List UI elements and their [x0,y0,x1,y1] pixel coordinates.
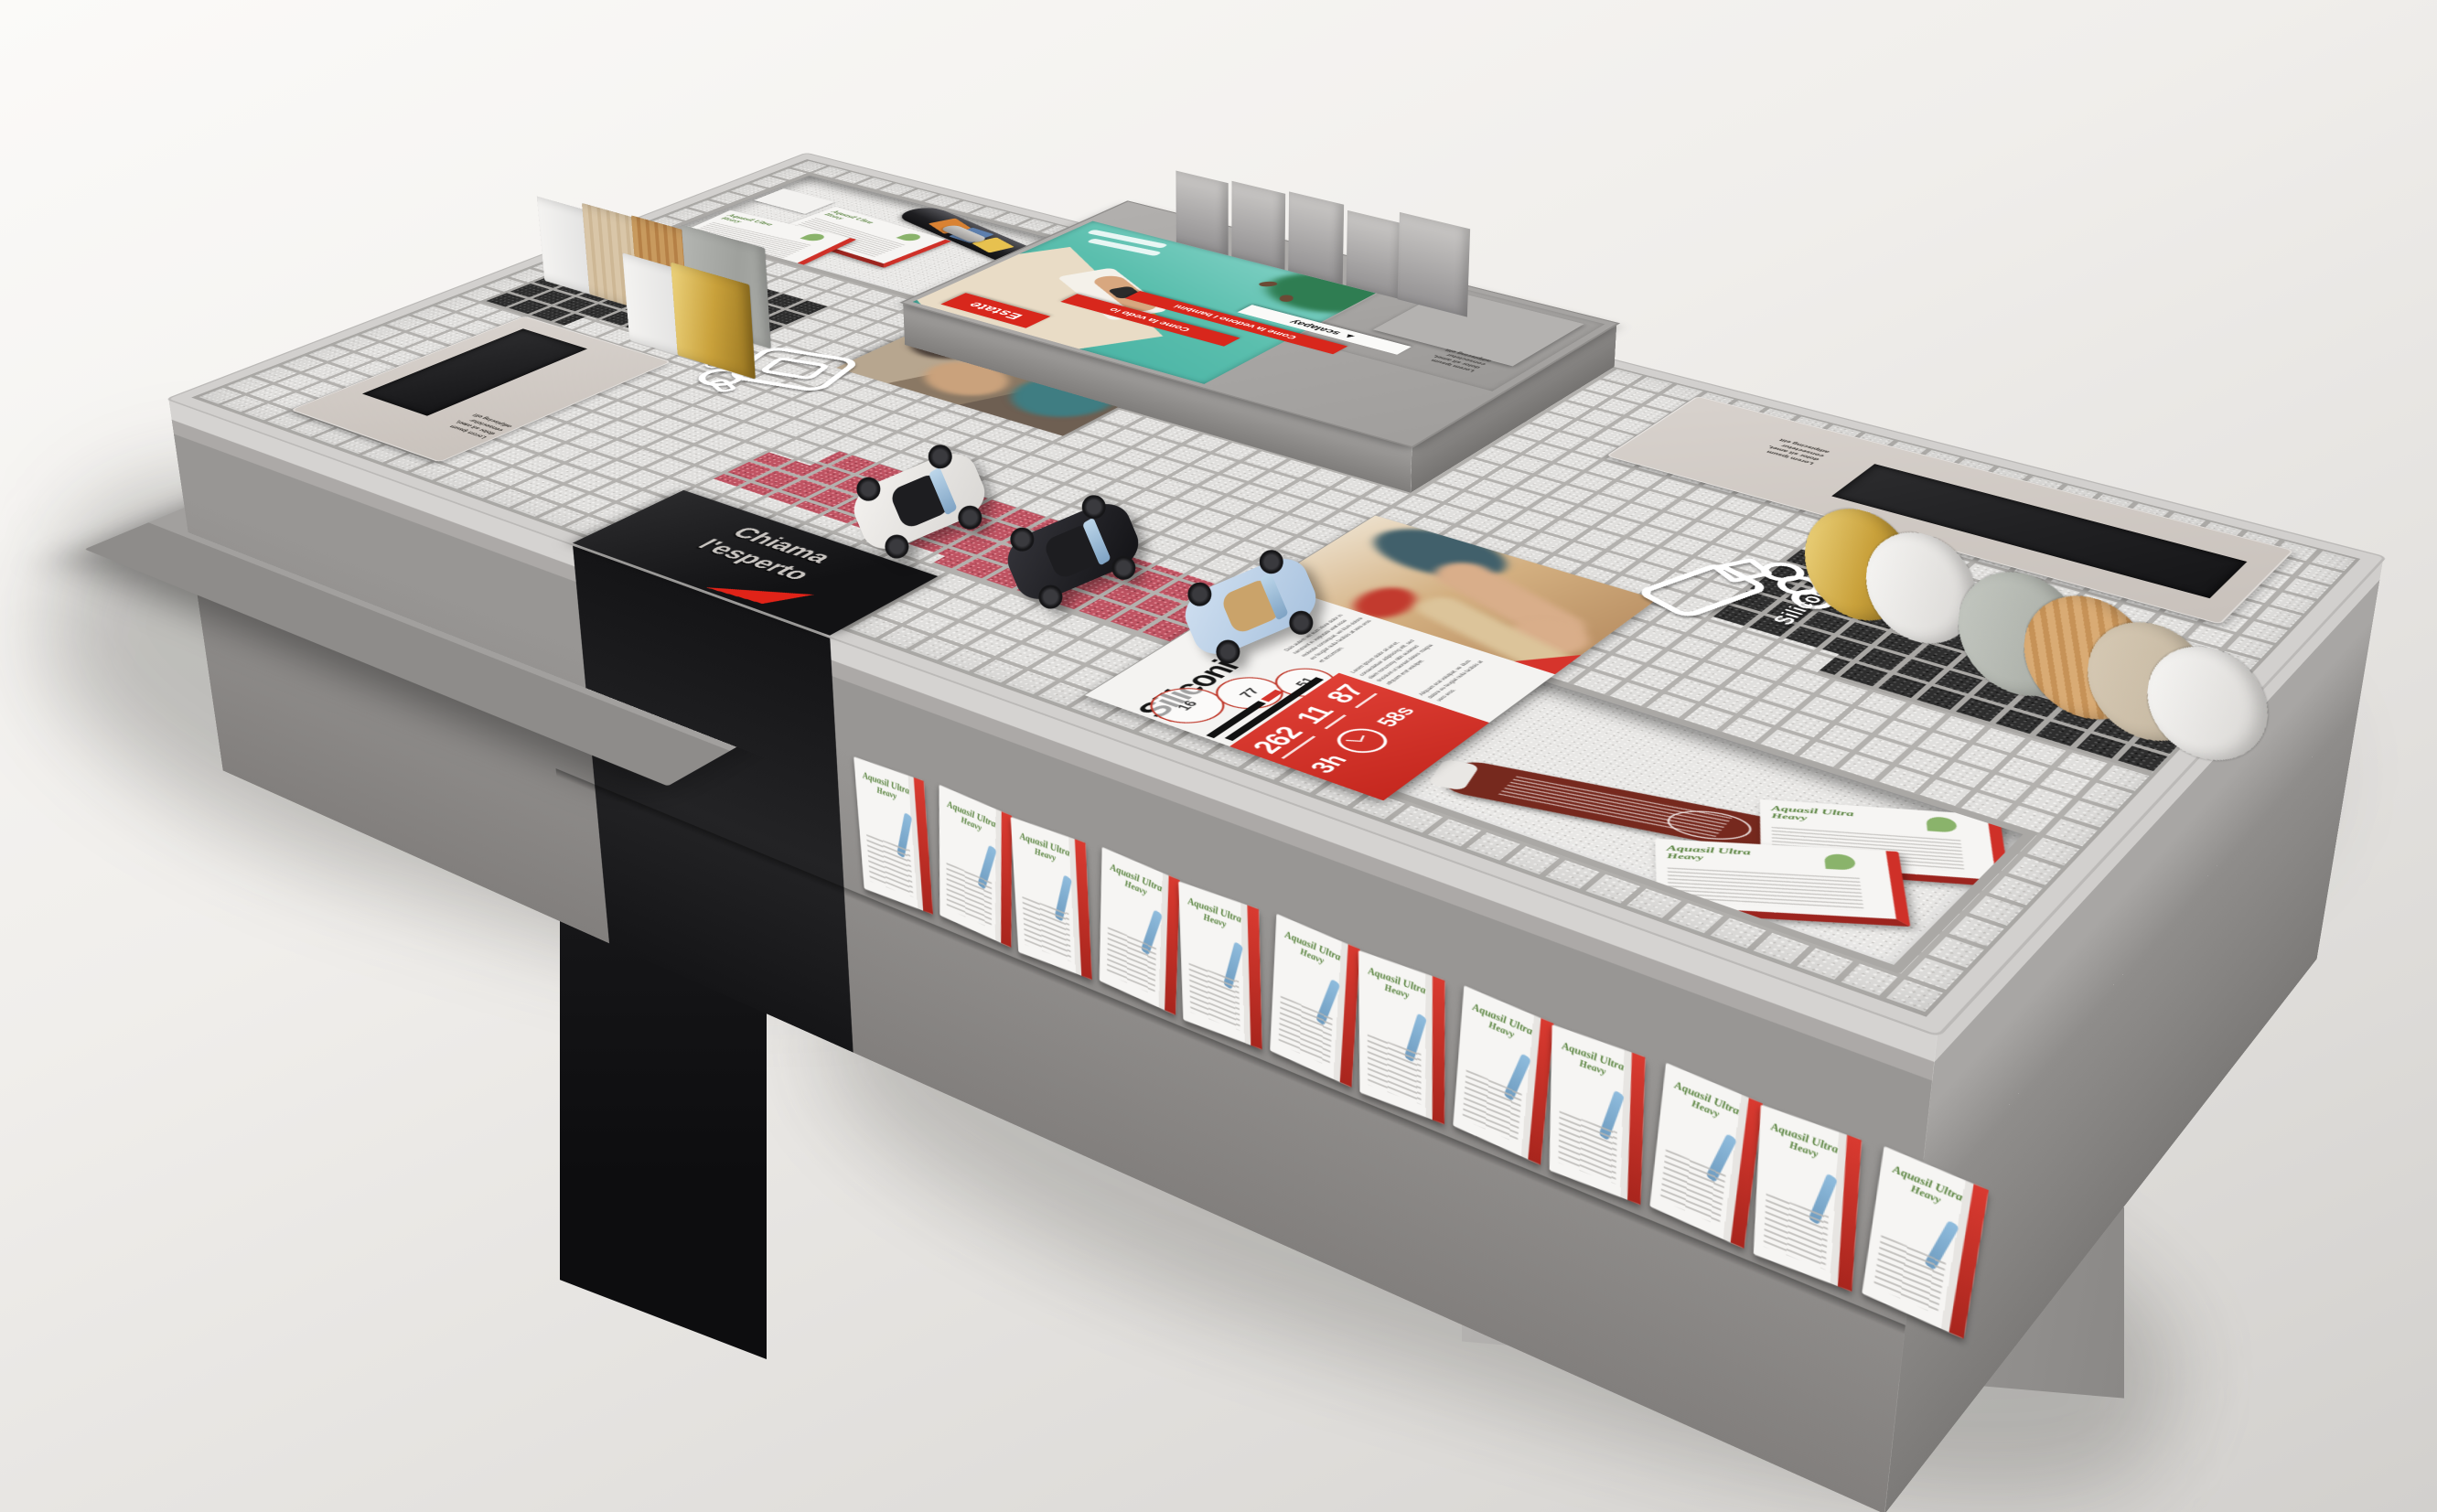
leaf-graphic [1824,853,1856,871]
white-sample-box [754,188,834,214]
product-box: Aquasil Ultra Heavy [1358,950,1445,1125]
plaque-caption: Lorem ipsum dolor sit amet, consectetur … [426,407,515,440]
product-box: Aquasil Ultra Heavy [1011,817,1092,980]
scene: Aquasil UltraHeavy Aquasil UltraHeavy Aq… [0,0,2437,1512]
product-brand-label: Aquasil UltraHeavy [1771,804,1854,824]
product-brand-label: Aquasil Ultra Heavy [1557,1038,1628,1086]
stat-circle-value: 77 [1235,686,1263,700]
product-box: Aquasil Ultra Heavy [853,756,933,915]
product-box: Aquasil Ultra Heavy [1649,1063,1763,1249]
stat-circle-value: 16 [1173,699,1202,713]
product-brand-label: Aquasil Ultra Heavy [1669,1077,1745,1130]
product-box: Aquasil Ultra Heavy [1270,914,1360,1088]
seconds-value: 58s [1371,703,1422,729]
clock-icon [1327,724,1396,758]
leaf-graphic [896,232,924,242]
product-brand-label: Aquasil Ultra Heavy [1281,928,1345,976]
tube-cap [1427,759,1480,791]
leaf-graphic [800,232,828,241]
product-box: Aquasil Ultra Heavy [1550,1024,1646,1205]
product-brand-label: Aquasil Ultra Heavy [1184,894,1245,937]
grey-sample-block [1231,181,1285,270]
plaque-caption: Lorem ipsum dolor sit amet, consectetur … [1690,419,1831,466]
stat-number: 262 [1245,724,1316,759]
product-brand-label: Aquasil Ultra Heavy [1766,1119,1843,1169]
stat-number: 11 [1288,702,1347,729]
product-box: Aquasil Ultra Heavy [1100,847,1180,1015]
product-brand-label: Aquasil Ultra Heavy [1106,860,1165,906]
product-brand-label: Aquasil Ultra Heavy [1016,830,1074,871]
product-box: Aquasil Ultra Heavy [939,785,1012,948]
product-brand-label: Aquasil UltraHeavy [1667,844,1752,864]
product-brand-label: Aquasil Ultra Heavy [1467,999,1537,1050]
product-brand-label: Aquasil Ultra Heavy [944,798,999,842]
leaf-graphic [1926,816,1958,832]
stat-number: 87 [1319,681,1378,708]
grey-sample-block [1347,210,1404,300]
product-box: Aquasil Ultra Heavy [1754,1104,1862,1292]
tube-logo-oval [1664,807,1754,843]
product-box: Aquasil Ultra Heavy [1178,881,1262,1049]
grey-sample-block [1288,191,1344,284]
hours-value: 3h [1304,751,1354,776]
product-brand-label: Aquasil Ultra Heavy [1364,963,1430,1009]
grey-sample-block [1176,170,1228,255]
product-brand-label: Aquasil Ultra Heavy [859,768,914,808]
product-box: Aquasil Ultra Heavy [1453,985,1553,1164]
